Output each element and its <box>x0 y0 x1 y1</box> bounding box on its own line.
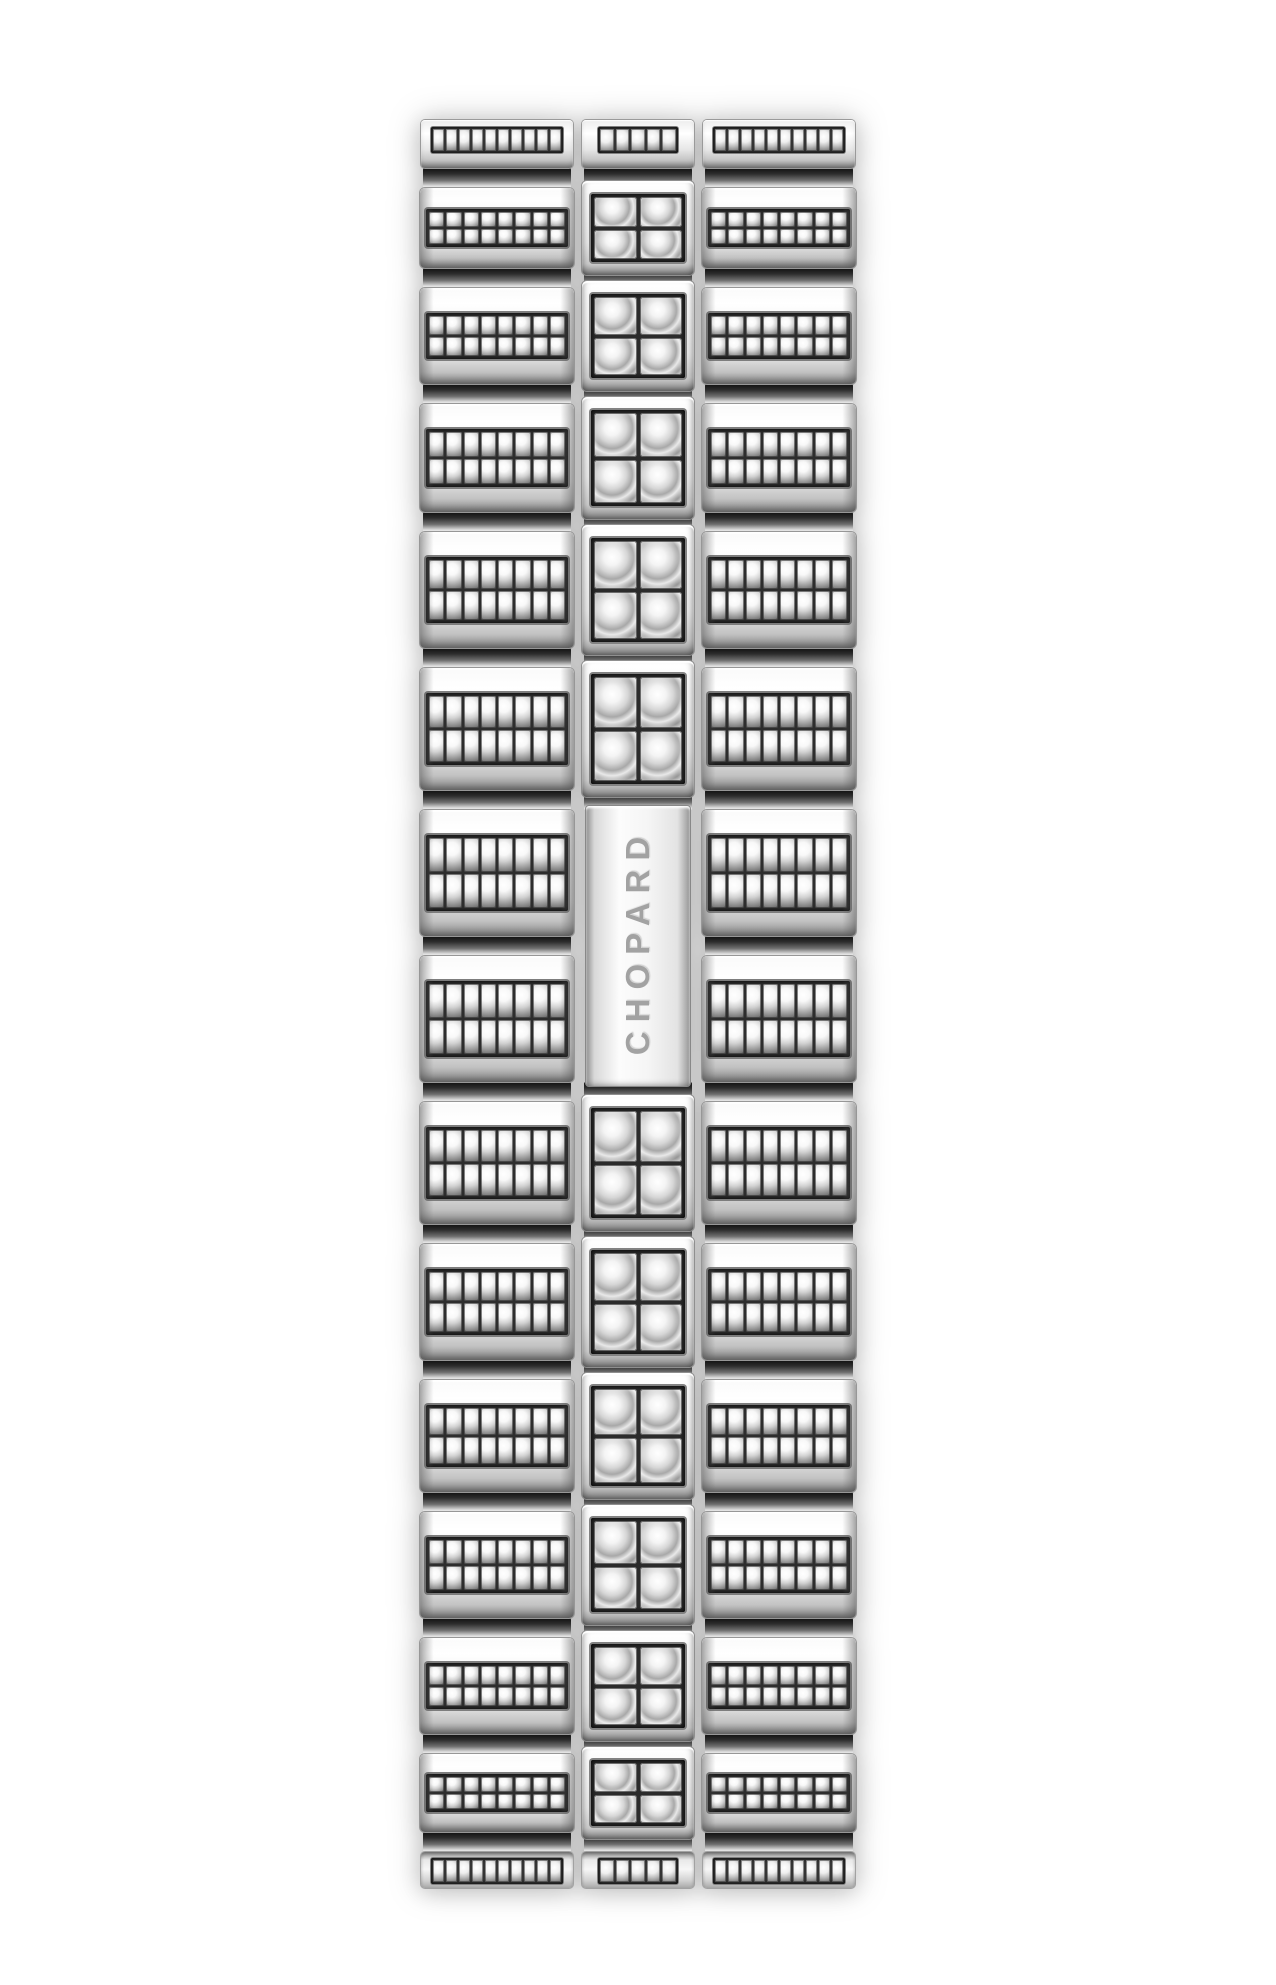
pave-diamond <box>763 1566 778 1590</box>
pave-diamond <box>780 432 795 457</box>
bracelet-link <box>420 1102 574 1224</box>
pave-diamond <box>429 212 444 227</box>
pave-panel <box>426 1127 568 1199</box>
end-cap-pave-strip <box>431 127 563 153</box>
pave-diamond <box>815 1437 830 1464</box>
pave-diamond <box>746 696 761 728</box>
cube-diamond <box>594 1647 637 1685</box>
pave-diamond <box>498 1687 513 1706</box>
pave-diamond <box>498 1437 513 1464</box>
pave-diamond <box>746 1020 761 1054</box>
cap-diamond <box>647 129 661 151</box>
center-cube-link <box>582 397 694 519</box>
pave-diamond <box>464 1164 479 1196</box>
pave-diamond <box>746 1130 761 1162</box>
pave-diamond <box>797 560 812 589</box>
pave-diamond <box>746 874 761 908</box>
pave-diamond <box>446 1164 461 1196</box>
cube-pave-panel <box>591 294 685 378</box>
pave-diamond <box>832 229 847 244</box>
pave-diamond <box>797 1272 812 1301</box>
cube-diamond <box>640 297 683 335</box>
pave-diamond <box>533 1164 548 1196</box>
pave-diamond <box>711 459 726 484</box>
cube-pave-panel <box>591 1644 685 1728</box>
cube-pave-panel <box>591 194 685 262</box>
pave-diamond <box>515 1303 530 1332</box>
cube-diamond <box>594 1521 637 1564</box>
pave-diamond <box>728 1794 743 1809</box>
pave-diamond <box>429 1272 444 1301</box>
pave-diamond <box>815 560 830 589</box>
pave-diamond <box>429 459 444 484</box>
pave-diamond <box>515 316 530 335</box>
bottom-end-cap <box>582 1852 694 1888</box>
pave-diamond <box>711 560 726 589</box>
pave-diamond <box>728 1777 743 1792</box>
pave-diamond <box>429 984 444 1018</box>
pave-diamond <box>780 1777 795 1792</box>
pave-diamond <box>763 1437 778 1464</box>
pave-diamond <box>550 316 565 335</box>
pave-diamond <box>464 696 479 728</box>
pave-diamond <box>550 1777 565 1792</box>
pave-diamond <box>832 316 847 335</box>
cap-diamond <box>485 1860 496 1882</box>
pave-diamond <box>815 1303 830 1332</box>
center-cube-link <box>582 525 694 655</box>
pave-diamond <box>498 229 513 244</box>
pave-diamond <box>763 1303 778 1332</box>
pave-diamond <box>780 1566 795 1590</box>
pave-diamond <box>515 838 530 872</box>
pave-diamond <box>515 1666 530 1685</box>
end-cap-pave-strip <box>431 1858 563 1884</box>
pave-diamond <box>728 316 743 335</box>
pave-diamond <box>481 560 496 589</box>
pave-diamond <box>815 1794 830 1809</box>
pave-diamond <box>498 1408 513 1435</box>
pave-diamond <box>728 1540 743 1564</box>
pave-diamond <box>797 696 812 728</box>
pave-diamond <box>780 984 795 1018</box>
cube-diamond <box>594 1165 637 1216</box>
pave-diamond <box>711 432 726 457</box>
pave-diamond <box>464 1777 479 1792</box>
pave-diamond <box>481 1777 496 1792</box>
pave-diamond <box>763 838 778 872</box>
pave-diamond <box>711 1687 726 1706</box>
cube-diamond <box>594 1795 637 1824</box>
pave-diamond <box>429 591 444 620</box>
pave-diamond <box>446 432 461 457</box>
pave-diamond <box>763 1020 778 1054</box>
pave-diamond <box>446 1777 461 1792</box>
pave-diamond <box>711 730 726 762</box>
pave-diamond <box>481 1794 496 1809</box>
pave-diamond <box>763 696 778 728</box>
bottom-end-cap <box>421 1852 573 1888</box>
pave-diamond <box>533 1666 548 1685</box>
pave-diamond <box>515 1777 530 1792</box>
bracelet-link <box>420 1512 574 1618</box>
cap-diamond <box>616 129 630 151</box>
pave-panel <box>708 1269 850 1335</box>
pave-diamond <box>728 1272 743 1301</box>
pave-diamond <box>533 874 548 908</box>
pave-diamond <box>797 459 812 484</box>
cube-diamond <box>594 1111 637 1162</box>
pave-diamond <box>464 838 479 872</box>
pave-panel <box>708 835 850 911</box>
cube-diamond <box>594 1253 637 1301</box>
pave-diamond <box>797 1687 812 1706</box>
pave-diamond <box>533 1794 548 1809</box>
pave-diamond <box>533 229 548 244</box>
cap-diamond <box>819 1860 830 1882</box>
bracelet-link <box>420 1754 574 1832</box>
pave-diamond <box>498 838 513 872</box>
bracelet-link <box>702 1754 856 1832</box>
cap-diamond <box>472 129 483 151</box>
pave-diamond <box>763 337 778 356</box>
pave-diamond <box>746 337 761 356</box>
pave-diamond <box>780 1272 795 1301</box>
pave-diamond <box>797 1130 812 1162</box>
pave-diamond <box>746 560 761 589</box>
pave-diamond <box>498 591 513 620</box>
pave-diamond <box>763 730 778 762</box>
cap-diamond <box>631 1860 645 1882</box>
bracelet-link <box>702 1102 856 1224</box>
cube-diamond <box>640 1304 683 1352</box>
link-seam <box>705 1360 853 1380</box>
pave-diamond <box>429 1794 444 1809</box>
link-seam <box>705 168 853 188</box>
pave-diamond <box>728 1130 743 1162</box>
pave-diamond <box>797 337 812 356</box>
cube-pave-panel <box>591 1386 685 1486</box>
cube-diamond <box>640 1111 683 1162</box>
pave-panel <box>426 835 568 911</box>
pave-panel <box>426 1405 568 1467</box>
pave-diamond <box>498 459 513 484</box>
pave-diamond <box>464 1687 479 1706</box>
link-seam <box>423 168 571 188</box>
pave-diamond <box>797 730 812 762</box>
pave-diamond <box>728 696 743 728</box>
link-seam <box>705 648 853 668</box>
pave-diamond <box>429 560 444 589</box>
cap-diamond <box>498 129 509 151</box>
pave-diamond <box>498 1130 513 1162</box>
pave-diamond <box>498 432 513 457</box>
pave-diamond <box>832 874 847 908</box>
bottom-end-cap <box>703 1852 855 1888</box>
pave-diamond <box>780 1437 795 1464</box>
pave-diamond <box>832 560 847 589</box>
link-seam <box>705 1618 853 1638</box>
pave-diamond <box>498 984 513 1018</box>
cube-pave-panel <box>591 1108 685 1218</box>
pave-diamond <box>550 212 565 227</box>
pave-diamond <box>481 696 496 728</box>
pave-diamond <box>515 591 530 620</box>
pave-diamond <box>550 1566 565 1590</box>
pave-diamond <box>550 730 565 762</box>
pave-diamond <box>429 229 444 244</box>
pave-panel <box>708 1774 850 1812</box>
cap-diamond <box>550 129 561 151</box>
pave-panel <box>426 313 568 359</box>
cube-diamond <box>594 1567 637 1610</box>
bracelet-link <box>702 810 856 936</box>
link-seam <box>705 790 853 810</box>
pave-diamond <box>815 337 830 356</box>
pave-diamond <box>832 591 847 620</box>
cube-pave-panel <box>591 1518 685 1612</box>
pave-diamond <box>498 560 513 589</box>
cube-pave-panel <box>591 410 685 506</box>
pave-diamond <box>815 838 830 872</box>
pave-diamond <box>533 1303 548 1332</box>
bracelet-link <box>420 288 574 384</box>
pave-diamond <box>446 1130 461 1162</box>
cap-diamond <box>472 1860 483 1882</box>
pave-diamond <box>498 1020 513 1054</box>
pave-diamond <box>515 1408 530 1435</box>
pave-panel <box>708 693 850 765</box>
center-link-slot <box>581 1512 695 1618</box>
pave-diamond <box>533 560 548 589</box>
cube-diamond <box>594 230 637 260</box>
center-link-slot <box>581 532 695 648</box>
pave-diamond <box>481 1566 496 1590</box>
link-seam <box>423 648 571 668</box>
pave-diamond <box>550 1303 565 1332</box>
pave-panel <box>426 693 568 765</box>
bracelet-link <box>702 1244 856 1360</box>
pave-diamond <box>832 337 847 356</box>
pave-diamond <box>498 1794 513 1809</box>
pave-diamond <box>429 1408 444 1435</box>
pave-diamond <box>481 316 496 335</box>
link-seam <box>423 268 571 288</box>
pave-diamond <box>550 1666 565 1685</box>
pave-diamond <box>550 1794 565 1809</box>
cap-diamond <box>741 1860 752 1882</box>
pave-diamond <box>832 838 847 872</box>
pave-diamond <box>728 1164 743 1196</box>
pave-diamond <box>533 591 548 620</box>
pave-diamond <box>429 874 444 908</box>
pave-diamond <box>746 212 761 227</box>
cap-diamond <box>524 129 535 151</box>
pave-diamond <box>815 874 830 908</box>
pave-diamond <box>746 1794 761 1809</box>
center-cube-link <box>582 1631 694 1741</box>
pave-diamond <box>498 316 513 335</box>
pave-diamond <box>711 1408 726 1435</box>
link-seam <box>423 790 571 810</box>
pave-diamond <box>498 1777 513 1792</box>
cap-diamond <box>754 129 765 151</box>
pave-diamond <box>533 1130 548 1162</box>
pave-diamond <box>797 591 812 620</box>
pave-diamond <box>446 730 461 762</box>
cube-diamond <box>640 677 683 728</box>
center-link-slot <box>581 288 695 384</box>
pave-diamond <box>711 1666 726 1685</box>
cube-diamond <box>594 338 637 376</box>
pave-diamond <box>728 874 743 908</box>
pave-diamond <box>815 1130 830 1162</box>
cap-diamond <box>806 1860 817 1882</box>
pave-diamond <box>550 838 565 872</box>
cube-diamond <box>594 297 637 335</box>
pave-diamond <box>498 1303 513 1332</box>
cube-diamond <box>640 1521 683 1564</box>
pave-diamond <box>533 1566 548 1590</box>
pave-diamond <box>515 1164 530 1196</box>
pave-diamond <box>429 1777 444 1792</box>
pave-diamond <box>711 1164 726 1196</box>
pave-diamond <box>481 337 496 356</box>
pave-panel <box>426 1537 568 1593</box>
pave-diamond <box>515 337 530 356</box>
link-seam <box>705 1224 853 1244</box>
pave-panel <box>708 209 850 247</box>
cube-diamond <box>594 1763 637 1792</box>
pave-diamond <box>429 696 444 728</box>
pave-diamond <box>763 1164 778 1196</box>
product-photo: CHOPARD <box>0 0 1276 1985</box>
cap-diamond <box>600 1860 614 1882</box>
pave-diamond <box>550 1020 565 1054</box>
cube-diamond <box>640 413 683 457</box>
pave-panel <box>426 1663 568 1709</box>
pave-panel <box>426 209 568 247</box>
cube-diamond <box>640 1763 683 1792</box>
pave-diamond <box>498 1666 513 1685</box>
pave-diamond <box>832 1794 847 1809</box>
center-cube-link <box>582 661 694 797</box>
pave-diamond <box>780 1130 795 1162</box>
pave-diamond <box>550 1164 565 1196</box>
pave-diamond <box>746 1408 761 1435</box>
pave-diamond <box>797 1408 812 1435</box>
pave-panel <box>708 1537 850 1593</box>
pave-diamond <box>481 874 496 908</box>
pave-diamond <box>832 1130 847 1162</box>
pave-diamond <box>746 316 761 335</box>
pave-diamond <box>550 591 565 620</box>
cap-diamond <box>616 1860 630 1882</box>
link-seam <box>423 1832 571 1852</box>
pave-diamond <box>728 1566 743 1590</box>
pave-diamond <box>446 1437 461 1464</box>
pave-diamond <box>429 1303 444 1332</box>
cube-diamond <box>594 1438 637 1484</box>
pave-diamond <box>832 1540 847 1564</box>
cube-diamond <box>594 541 637 589</box>
pave-diamond <box>481 1540 496 1564</box>
pave-diamond <box>780 212 795 227</box>
pave-diamond <box>728 337 743 356</box>
pave-diamond <box>515 696 530 728</box>
pave-diamond <box>711 1130 726 1162</box>
cap-diamond <box>537 129 548 151</box>
pave-diamond <box>711 316 726 335</box>
pave-diamond <box>533 1020 548 1054</box>
pave-diamond <box>797 316 812 335</box>
pave-diamond <box>429 432 444 457</box>
pave-diamond <box>533 459 548 484</box>
pave-diamond <box>711 229 726 244</box>
center-cube-link <box>582 1505 694 1625</box>
pave-diamond <box>780 1164 795 1196</box>
pave-diamond <box>446 1272 461 1301</box>
cube-diamond <box>640 592 683 640</box>
pave-diamond <box>533 316 548 335</box>
cap-diamond <box>459 1860 470 1882</box>
pave-diamond <box>815 1777 830 1792</box>
bracelet-link <box>420 1380 574 1492</box>
pave-panel <box>426 557 568 623</box>
link-seam <box>705 1082 853 1102</box>
cap-diamond <box>728 129 739 151</box>
pave-diamond <box>711 1272 726 1301</box>
pave-panel <box>708 1663 850 1709</box>
cube-pave-panel <box>591 1250 685 1354</box>
pave-diamond <box>832 1687 847 1706</box>
cube-diamond <box>640 1438 683 1484</box>
pave-diamond <box>711 1303 726 1332</box>
cap-diamond <box>446 129 457 151</box>
pave-diamond <box>515 459 530 484</box>
cap-diamond <box>715 1860 726 1882</box>
pave-diamond <box>728 838 743 872</box>
cap-diamond <box>511 129 522 151</box>
cube-diamond <box>640 1795 683 1824</box>
pave-diamond <box>832 1020 847 1054</box>
pave-diamond <box>481 212 496 227</box>
pave-diamond <box>464 730 479 762</box>
pave-diamond <box>515 730 530 762</box>
link-seam <box>423 384 571 404</box>
pave-diamond <box>832 730 847 762</box>
bracelet-column-center: CHOPARD <box>581 120 695 1888</box>
pave-diamond <box>464 1272 479 1301</box>
cube-diamond <box>640 338 683 376</box>
pave-diamond <box>498 730 513 762</box>
cube-diamond <box>640 1165 683 1216</box>
pave-diamond <box>550 696 565 728</box>
bracelet-link <box>420 1244 574 1360</box>
cube-diamond <box>594 677 637 728</box>
pave-diamond <box>728 1020 743 1054</box>
pave-diamond <box>446 1666 461 1685</box>
cap-diamond <box>780 129 791 151</box>
cap-diamond <box>511 1860 522 1882</box>
end-cap-pave-strip <box>598 1858 678 1884</box>
pave-diamond <box>780 730 795 762</box>
pave-diamond <box>446 459 461 484</box>
pave-diamond <box>763 984 778 1018</box>
pave-diamond <box>711 337 726 356</box>
pave-diamond <box>446 560 461 589</box>
watch-bracelet: CHOPARD <box>420 120 856 1888</box>
